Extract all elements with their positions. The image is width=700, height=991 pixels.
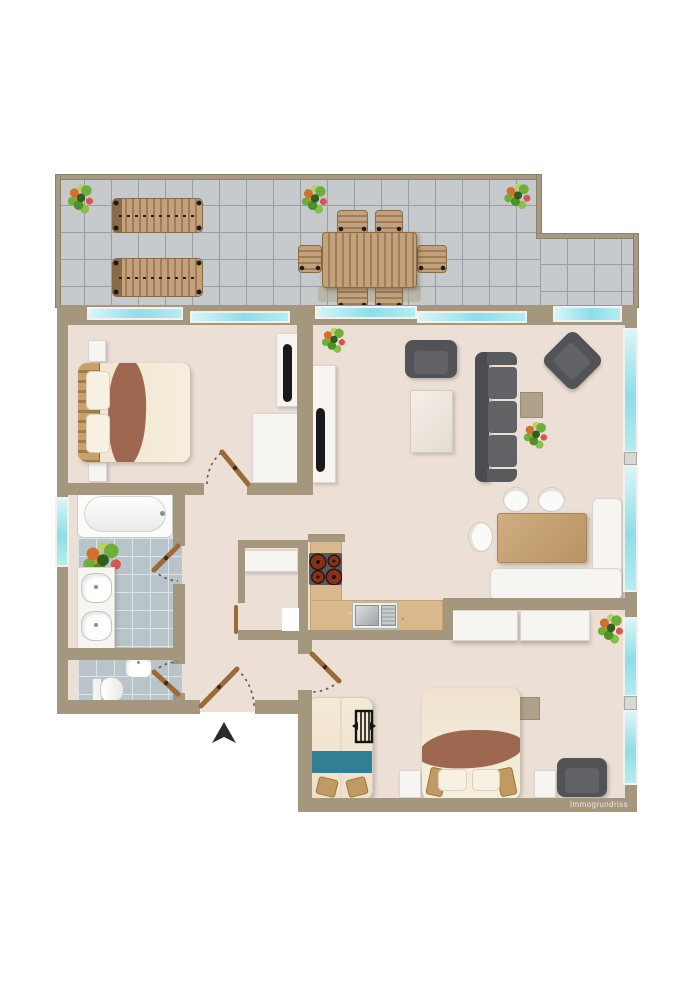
- cot-teal-blanket: [308, 751, 373, 773]
- plant: [66, 182, 96, 215]
- sofa-armrest: [487, 352, 517, 365]
- dining-chair: [538, 487, 565, 512]
- niche-door-opening: [282, 608, 299, 631]
- window: [623, 465, 638, 592]
- side-table: [518, 697, 540, 720]
- garden-dining-table: [322, 232, 417, 288]
- bathtub-basin: [84, 496, 166, 532]
- wall: [57, 648, 185, 660]
- child-cot: [308, 697, 373, 800]
- plant: [522, 420, 550, 450]
- terrace-wall: [633, 233, 639, 308]
- window: [87, 307, 183, 320]
- wall: [298, 640, 312, 654]
- wall: [297, 310, 313, 490]
- hob-four-burners: [309, 553, 342, 585]
- sun-lounger: [112, 198, 203, 233]
- garden-chair: [417, 245, 447, 273]
- plant: [596, 612, 626, 645]
- sofa-backrest: [475, 352, 489, 482]
- side-table: [520, 392, 543, 418]
- terrace-door-window: [417, 311, 527, 323]
- floor-plan-canvas: Immogrundriss: [0, 0, 700, 991]
- armchair-cushion: [414, 351, 448, 374]
- watermark: Immogrundriss: [500, 800, 632, 812]
- pillow: [438, 769, 467, 791]
- corner-bench: [490, 568, 622, 600]
- sofa-armrest: [487, 469, 517, 482]
- sofa-cushion: [488, 367, 517, 399]
- wall: [298, 540, 308, 642]
- rug: [410, 390, 453, 453]
- terrace-wall: [55, 174, 542, 180]
- window: [55, 497, 69, 567]
- double-bed: [78, 363, 190, 462]
- nightstand: [534, 770, 556, 798]
- wall: [452, 598, 625, 610]
- window: [623, 328, 638, 453]
- garden-chair: [298, 245, 322, 273]
- window-handle: [624, 452, 637, 465]
- pillow: [86, 414, 110, 453]
- washbasin-counter: [77, 567, 115, 650]
- faucet-dot: [137, 661, 140, 664]
- lounger-fold-line: [119, 277, 197, 279]
- faucet-dot: [94, 623, 98, 627]
- window: [623, 710, 638, 785]
- terrace-floor: [540, 237, 637, 306]
- wardrobe: [252, 413, 298, 483]
- window: [190, 311, 290, 323]
- nightstand: [88, 340, 106, 362]
- niche-cabinet: [241, 550, 298, 572]
- wc-washbasin: [125, 657, 152, 678]
- sofa-cushion: [488, 401, 517, 433]
- terrace-door-window: [315, 306, 417, 319]
- wall: [238, 630, 308, 640]
- tv-icon: [283, 344, 292, 402]
- wall: [173, 693, 185, 707]
- bathtub-faucet: [160, 511, 165, 516]
- terrace-wall: [536, 174, 542, 239]
- pillow: [86, 371, 110, 410]
- window: [553, 306, 622, 322]
- armchair: [557, 758, 607, 797]
- sink-basin: [355, 605, 379, 626]
- wall: [308, 630, 445, 640]
- tv-icon: [316, 408, 325, 472]
- terrace-wall: [55, 174, 61, 308]
- dining-chair: [468, 522, 493, 552]
- armchair-cushion: [565, 768, 599, 793]
- sofa-cushion: [488, 435, 517, 467]
- nightstand: [88, 462, 107, 482]
- sink-drainer: [381, 605, 396, 626]
- armchair-cushion: [552, 341, 592, 381]
- window-handle: [624, 696, 637, 710]
- garden-chair: [337, 210, 368, 234]
- sun-lounger: [112, 258, 203, 297]
- bathtub: [77, 490, 173, 538]
- wall: [298, 690, 312, 800]
- plant: [502, 182, 534, 210]
- entrance-arrow-icon: [212, 722, 236, 743]
- faucet-dot: [94, 585, 98, 589]
- double-bed: [422, 688, 520, 800]
- wall: [308, 534, 345, 542]
- plant: [300, 183, 330, 215]
- dining-table: [497, 513, 587, 563]
- terrace-wall: [536, 233, 639, 239]
- nightstand: [399, 770, 421, 798]
- armchair: [405, 340, 457, 378]
- plant: [320, 326, 348, 354]
- wardrobe: [520, 610, 590, 641]
- window: [623, 617, 638, 697]
- garden-chair: [375, 210, 403, 234]
- pillow: [472, 769, 500, 791]
- wall: [238, 540, 245, 603]
- lounger-fold-line: [119, 215, 197, 217]
- wall: [247, 483, 313, 495]
- table-shadow-mat: [318, 286, 421, 302]
- dining-chair: [503, 487, 529, 512]
- wall: [173, 483, 185, 546]
- wardrobe: [452, 610, 518, 641]
- kitchen-sink-unit: [352, 602, 398, 629]
- cot-divider: [340, 698, 342, 800]
